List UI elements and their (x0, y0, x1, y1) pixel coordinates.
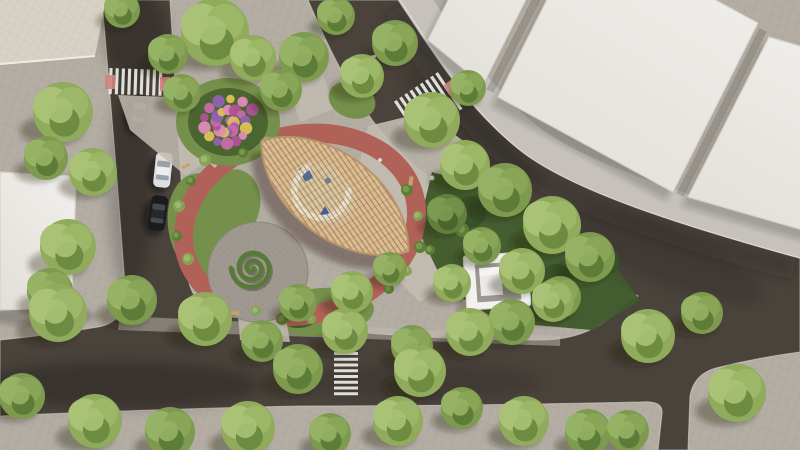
flower-cluster (226, 95, 234, 103)
shrub (425, 245, 435, 255)
tree (273, 344, 323, 394)
building-top-left (0, 0, 106, 64)
tree (107, 275, 157, 325)
tree (446, 308, 494, 356)
tree (681, 292, 723, 334)
tree (260, 69, 302, 111)
tree (433, 264, 471, 302)
tree (708, 364, 766, 422)
shrub (238, 148, 248, 158)
curb-ramp (105, 75, 115, 89)
shrub (172, 231, 182, 241)
tree (322, 308, 368, 354)
tree (340, 54, 384, 98)
flower-cluster (204, 103, 214, 113)
tree (478, 163, 532, 217)
shrub (251, 306, 261, 316)
flower-cluster (200, 113, 208, 121)
tree (68, 394, 122, 448)
tree (450, 70, 486, 106)
aerial-park-render (0, 0, 800, 450)
tree (24, 136, 68, 180)
shrub (173, 200, 185, 212)
tree (621, 309, 675, 363)
tree (394, 345, 446, 397)
scene-svg (0, 0, 800, 450)
tree (489, 299, 535, 345)
tree (148, 34, 188, 74)
shrub (413, 211, 423, 221)
tree (404, 92, 460, 148)
flower-cluster (198, 121, 210, 133)
tree (163, 74, 201, 112)
flower-cluster (212, 95, 224, 107)
kiosk-block-top (479, 267, 502, 277)
tree (279, 284, 317, 322)
stone (378, 158, 382, 162)
tree (373, 252, 407, 286)
tree (178, 292, 232, 346)
shrub (186, 176, 196, 186)
tree (331, 271, 373, 313)
flower-cluster (237, 97, 247, 107)
tree (373, 396, 423, 446)
tree (33, 82, 93, 142)
tree (69, 148, 117, 196)
flower-cluster (213, 138, 221, 146)
tree (40, 219, 96, 275)
tree (532, 280, 574, 322)
tree (372, 20, 418, 66)
flower-cluster (221, 137, 233, 149)
tree (441, 387, 483, 429)
shrub (401, 184, 413, 196)
shrub (414, 241, 426, 253)
shrub (199, 154, 211, 166)
tree (463, 227, 501, 265)
tree (29, 284, 87, 342)
tree (0, 373, 45, 419)
shrub (182, 253, 194, 265)
tree (427, 194, 467, 234)
tree (565, 232, 615, 282)
tree (499, 396, 549, 446)
